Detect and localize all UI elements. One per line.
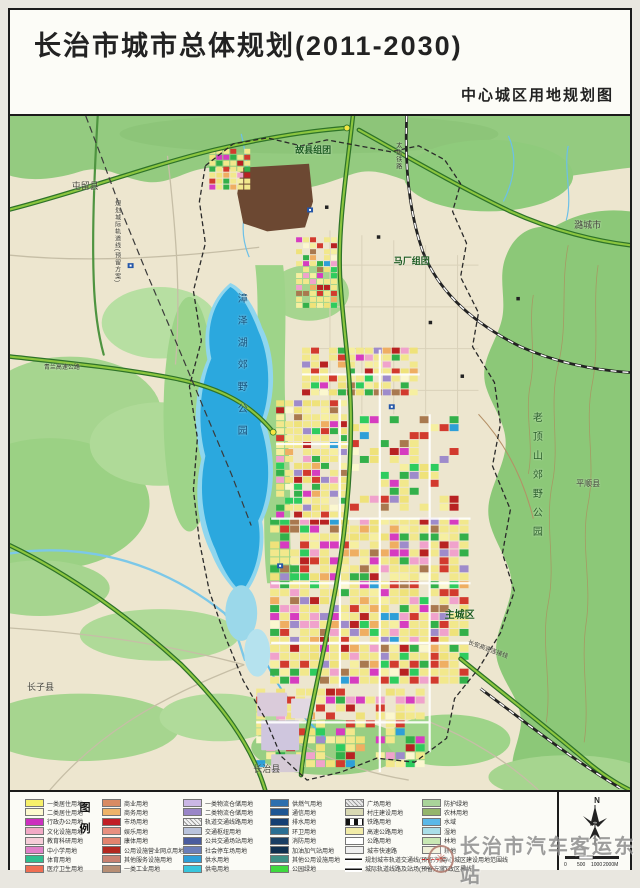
legend-swatch	[270, 827, 289, 835]
legend-label: 公路用地	[367, 836, 391, 845]
legend-swatch	[270, 818, 289, 826]
legend-swatch	[25, 855, 44, 863]
legend-item: 交通枢纽用地	[183, 827, 241, 835]
legend-item: 商业用地	[102, 799, 148, 807]
legend-label: 通信用地	[292, 808, 316, 817]
legend-item: 城市快速路	[345, 846, 397, 854]
legend-item: 高速公路用地	[345, 827, 403, 835]
legend-label: 消防用地	[292, 836, 316, 845]
legend-item: 一类工业用地	[102, 865, 160, 873]
legend-item: 消防用地	[270, 837, 316, 845]
legend-swatch	[345, 799, 364, 807]
legend-swatch	[345, 808, 364, 816]
legend-label: 水域	[444, 817, 456, 826]
legend-swatch	[183, 837, 202, 845]
legend-label: 康体用地	[124, 836, 148, 845]
legend-label: 高速公路用地	[367, 827, 403, 836]
map-canvas	[10, 116, 630, 790]
legend-swatch	[25, 837, 44, 845]
legend-label: 二类物流仓储用地	[205, 808, 253, 817]
legend-swatch	[183, 865, 202, 873]
legend-swatch	[270, 808, 289, 816]
legend-swatch	[345, 866, 362, 872]
legend-item: 加油加气站用地	[270, 846, 334, 854]
legend-item: 中小学用地	[25, 846, 77, 854]
legend-swatch	[422, 818, 441, 826]
legend-swatch	[345, 846, 364, 854]
legend-swatch	[102, 865, 121, 873]
legend-swatch	[270, 855, 289, 863]
legend-swatch	[102, 827, 121, 835]
legend-swatch	[270, 865, 289, 873]
legend-item: 农林用地	[422, 808, 468, 816]
legend-item: 供水用地	[183, 855, 229, 863]
legend-item: 环卫用地	[270, 827, 316, 835]
legend-swatch	[25, 846, 44, 854]
legend-label: 一类物流仓储用地	[205, 799, 253, 808]
legend-label: 其他服务设施用地	[124, 855, 172, 864]
legend-label: 广场用地	[367, 799, 391, 808]
legend-swatch	[345, 827, 364, 835]
watermark-text: 长治市汽车客运东站	[460, 830, 640, 888]
legend-item: 一类居住用地	[25, 799, 83, 807]
legend-item: 医疗卫生用地	[25, 865, 83, 873]
legend-item: 其他公用设施用地	[270, 855, 340, 863]
legend-item: 公路用地	[345, 837, 391, 845]
legend-label: 社会停车场用地	[205, 846, 247, 855]
legend-label: 中小学用地	[47, 846, 77, 855]
legend-label: 商业用地	[124, 799, 148, 808]
legend-item: 体育用地	[25, 855, 71, 863]
legend-item: 供电用地	[183, 865, 229, 873]
legend-item: 通信用地	[270, 808, 316, 816]
legend-label: 城市快速路	[367, 846, 397, 855]
legend-swatch	[102, 855, 121, 863]
legend-item: 公共交通场站用地	[183, 837, 253, 845]
legend-label: 教育科研用地	[47, 836, 83, 845]
legend-label: 文化设施用地	[47, 827, 83, 836]
legend-label: 排水用地	[292, 817, 316, 826]
legend-label: 市场用地	[124, 817, 148, 826]
legend-label: 供燃气用地	[292, 799, 322, 808]
legend-swatch	[25, 808, 44, 816]
legend-label: 一类工业用地	[124, 864, 160, 873]
legend-swatch	[422, 808, 441, 816]
legend-swatch	[102, 837, 121, 845]
legend-label: 防护绿地	[444, 799, 468, 808]
legend-item: 商务用地	[102, 808, 148, 816]
legend-item: 村庄建设用地	[345, 808, 403, 816]
legend-item: 公用设施营业网点用地	[102, 846, 184, 854]
legend-label: 其他公用设施用地	[292, 855, 340, 864]
legend-swatch	[183, 846, 202, 854]
north-label: N	[594, 796, 600, 805]
legend-label: 农林用地	[444, 808, 468, 817]
legend-item: 排水用地	[270, 818, 316, 826]
legend-label: 环卫用地	[292, 827, 316, 836]
legend-item: 公园绿地	[270, 865, 316, 873]
legend-label: 公园绿地	[292, 864, 316, 873]
legend-swatch	[422, 799, 441, 807]
legend-item: 铁路用地	[345, 818, 391, 826]
legend-item: 娱乐用地	[102, 827, 148, 835]
page-title: 长治市城市总体规划(2011-2030)	[34, 24, 463, 63]
legend-label: 轨道交通线路用地	[205, 817, 253, 826]
legend-label: 体育用地	[47, 855, 71, 864]
legend-label: 一类居住用地	[47, 799, 83, 808]
legend-swatch	[183, 808, 202, 816]
legend-label: 娱乐用地	[124, 827, 148, 836]
legend-item: 康体用地	[102, 837, 148, 845]
legend-item: 一类物流仓储用地	[183, 799, 253, 807]
legend-item: 社会停车场用地	[183, 846, 247, 854]
planning-map: 屯留县故县组团马厂组团潞城市漳泽湖郊野公园老顶山郊野公园平顺县主城区长子县长治县…	[10, 116, 630, 792]
legend-label: 医疗卫生用地	[47, 864, 83, 873]
legend-item: 防护绿地	[422, 799, 468, 807]
legend-swatch	[183, 855, 202, 863]
legend-swatch	[345, 818, 364, 826]
title-block: 长治市城市总体规划(2011-2030) 中心城区用地规划图	[10, 10, 630, 116]
legend-label: 村庄建设用地	[367, 808, 403, 817]
legend-swatch	[345, 856, 362, 862]
legend-label: 铁路用地	[367, 817, 391, 826]
legend-swatch	[345, 837, 364, 845]
legend-swatch	[270, 846, 289, 854]
legend-swatch	[25, 818, 44, 826]
sheet-frame: 长治市城市总体规划(2011-2030) 中心城区用地规划图	[8, 8, 632, 870]
legend-swatch	[270, 837, 289, 845]
legend-item: 其他服务设施用地	[102, 855, 172, 863]
legend-item: 二类居住用地	[25, 808, 83, 816]
legend-label: 公共交通场站用地	[205, 836, 253, 845]
legend-label: 二类居住用地	[47, 808, 83, 817]
legend-swatch	[183, 818, 202, 826]
legend-item: 文化设施用地	[25, 827, 83, 835]
legend-swatch	[183, 827, 202, 835]
legend-label: 商务用地	[124, 808, 148, 817]
legend-item: 行政办公用地	[25, 818, 83, 826]
legend-label: 供电用地	[205, 864, 229, 873]
page-subtitle: 中心城区用地规划图	[461, 84, 614, 105]
legend-item: 水域	[422, 818, 456, 826]
legend-label: 行政办公用地	[47, 817, 83, 826]
legend-item: 二类物流仓储用地	[183, 808, 253, 816]
legend-label: 加油加气站用地	[292, 846, 334, 855]
legend-swatch	[102, 799, 121, 807]
legend-item: 市场用地	[102, 818, 148, 826]
legend-swatch	[25, 827, 44, 835]
legend-item: 广场用地	[345, 799, 391, 807]
legend-label: 公用设施营业网点用地	[124, 846, 184, 855]
legend-swatch	[25, 865, 44, 873]
legend-swatch	[183, 799, 202, 807]
legend-swatch	[102, 808, 121, 816]
legend-swatch	[270, 799, 289, 807]
legend-item: 教育科研用地	[25, 837, 83, 845]
watermark: ✳ 长治市汽车客运东站	[428, 830, 640, 888]
legend-label: 交通枢纽用地	[205, 827, 241, 836]
legend-item: 供燃气用地	[270, 799, 322, 807]
watermark-logo-icon: ✳	[428, 845, 454, 873]
legend-label: 供水用地	[205, 855, 229, 864]
legend-swatch	[102, 818, 121, 826]
legend-item: 轨道交通线路用地	[183, 818, 253, 826]
legend-swatch	[102, 846, 121, 854]
legend-swatch	[25, 799, 44, 807]
